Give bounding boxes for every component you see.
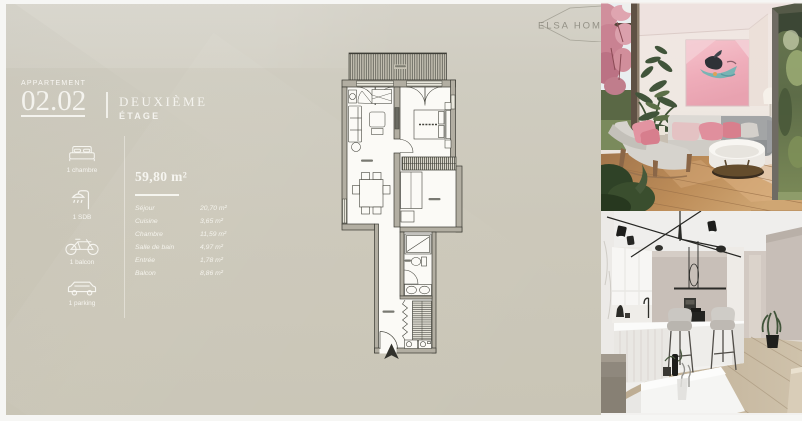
svg-text:ELSA HOME: ELSA HOME bbox=[538, 21, 601, 32]
